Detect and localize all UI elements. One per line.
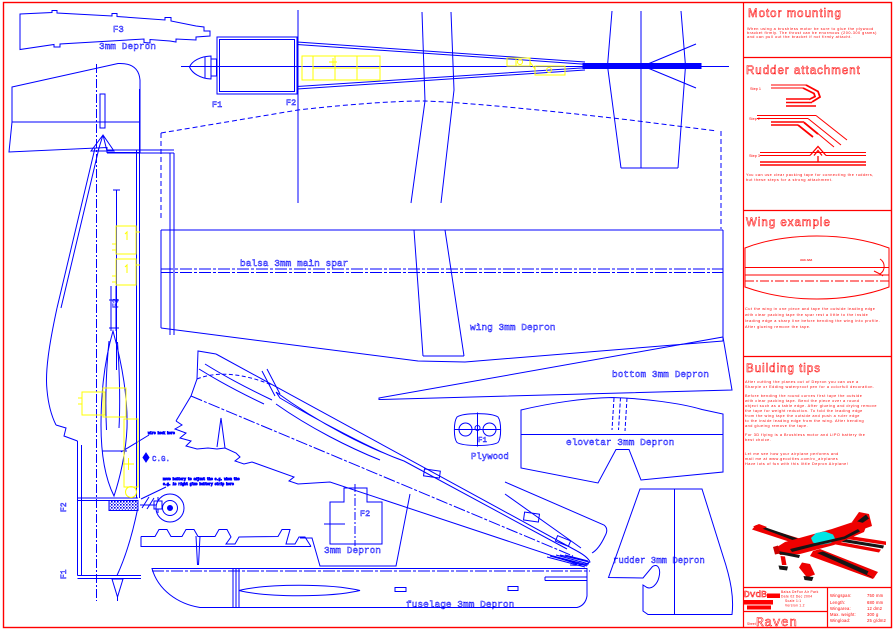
svg-text:F1: F1 <box>60 569 69 579</box>
svg-text:balsa 3mm maìn spar: balsa 3mm maìn spar <box>240 258 348 269</box>
svg-text:F3: F3 <box>112 298 121 308</box>
svg-text:Sheet: Sheet <box>747 622 756 626</box>
svg-text:Version 1.2: Version 1.2 <box>785 604 805 608</box>
svg-text:F2: F2 <box>60 502 69 512</box>
svg-text:rudder 3mm Depron: rudder 3mm Depron <box>613 556 705 566</box>
svg-text:Have lots of fun with thi: Have lots of fun with this little Depron… <box>745 462 848 466</box>
svg-text:3mm Depron: 3mm Depron <box>99 41 156 52</box>
svg-text:F1: F1 <box>478 437 488 445</box>
svg-text:and can pull out the brac: and can pull out the bracket if not firm… <box>747 35 852 39</box>
svg-text:c.g. is right glue battery str: c.g. is right glue battery strip here <box>163 482 234 486</box>
svg-text:aaa aaa: aaa aaa <box>800 258 812 262</box>
svg-text:Scale 1:1: Scale 1:1 <box>785 599 801 603</box>
svg-text:Wing example: Wing example <box>746 217 831 229</box>
svg-text:F2: F2 <box>286 98 296 108</box>
svg-text:C.G.: C.G. <box>152 456 170 464</box>
svg-text:300 g: 300 g <box>867 612 879 617</box>
svg-text:12 dm2: 12 dm2 <box>867 606 883 611</box>
svg-text:fuselage 3mm Depron: fuselage 3mm Depron <box>406 599 514 610</box>
svg-text:wire hook here: wire hook here <box>148 431 175 435</box>
svg-text:leading edge a sharp line: leading edge a sharp line before bending… <box>745 319 880 323</box>
svg-text:After cutting the planes o: After cutting the planes out of Depron y… <box>745 380 859 384</box>
svg-text:move battery to adjust the c.g: move battery to adjust the c.g. when the <box>163 477 240 481</box>
svg-text:Max. weight:: Max. weight: <box>830 612 856 617</box>
svg-text:bottom 3mm Depron: bottom 3mm Depron <box>612 369 709 380</box>
svg-text:with clear packing tape. B: with clear packing tape. Bend the piece … <box>745 399 859 403</box>
svg-text:25 g/dm2: 25 g/dm2 <box>867 618 887 623</box>
svg-text:F2: F2 <box>360 509 370 519</box>
svg-text:F3: F3 <box>113 25 124 35</box>
svg-text:with clear packing tape th: with clear packing tape the spar rest a … <box>745 313 868 317</box>
svg-text:After glueing remove the t: After glueing remove the tape. <box>745 325 811 329</box>
svg-text:Raven: Raven <box>756 615 798 630</box>
svg-text:DvdB: DvdB <box>744 589 767 600</box>
svg-text:You can use clear packing: You can use clear packing tape for conne… <box>746 173 874 177</box>
svg-text:to the inside leading edge: to the inside leading edge from the wing… <box>745 419 864 423</box>
svg-text:Rudder attachment: Rudder attachment <box>746 65 861 77</box>
svg-text:Let me see how your airpl: Let me see how your airplane performs an… <box>745 452 839 456</box>
svg-text:3mm Depron: 3mm Depron <box>324 545 381 556</box>
svg-text:object such as a table ed: object such as a table edge. After gluei… <box>745 404 877 408</box>
svg-text:mail me at www.geocities.co: mail me at www.geocities.com/rc_airplane… <box>745 457 838 461</box>
svg-text:Wingspan:: Wingspan: <box>830 593 852 598</box>
svg-text:Building tips: Building tips <box>746 363 821 375</box>
svg-text:Wingload:: Wingload: <box>830 618 850 623</box>
svg-text:Motor mounting: Motor mounting <box>748 8 842 20</box>
svg-text:Cut the wing in one piece: Cut the wing in one piece and tape the o… <box>745 307 875 311</box>
svg-text:680 mm: 680 mm <box>867 600 884 605</box>
svg-text:Length:: Length: <box>830 600 845 605</box>
svg-text:Wingarea:: Wingarea: <box>830 606 851 611</box>
svg-text:but these steps for a str: but these steps for a strong attachment. <box>746 178 833 182</box>
svg-text:Plywood: Plywood <box>471 452 509 462</box>
svg-text:elovetar 3mm Depron: elovetar 3mm Depron <box>566 437 674 448</box>
svg-text:Date 02 Dec 2004: Date 02 Dec 2004 <box>781 595 812 599</box>
svg-text:Balsa DeFun Air Park: Balsa DeFun Air Park <box>781 590 819 594</box>
svg-text:from the wing tape the ou: from the wing tape the outside and push … <box>745 414 860 418</box>
svg-text:Step 1: Step 1 <box>750 87 761 91</box>
svg-text:wìng 3mm Depron: wìng 3mm Depron <box>470 322 556 333</box>
svg-text:Step 3: Step 3 <box>749 154 760 158</box>
svg-text:the tape for weight reduct: the tape for weight reduction. To fold t… <box>745 409 863 413</box>
svg-text:Before bending the round c: Before bending the round curves first ta… <box>745 394 862 398</box>
svg-text:750 mm: 750 mm <box>867 593 884 598</box>
svg-text:For 3D flying is a Brushl: For 3D flying is a Brushless motor and L… <box>745 433 865 437</box>
svg-text:Sharpie or Edding waterproo: Sharpie or Edding waterproof pen for a c… <box>745 385 874 389</box>
svg-text:F1: F1 <box>212 100 222 110</box>
svg-text:best choice.: best choice. <box>745 438 771 442</box>
svg-text:and glueing remove the tap: and glueing remove the tape. <box>745 424 808 428</box>
